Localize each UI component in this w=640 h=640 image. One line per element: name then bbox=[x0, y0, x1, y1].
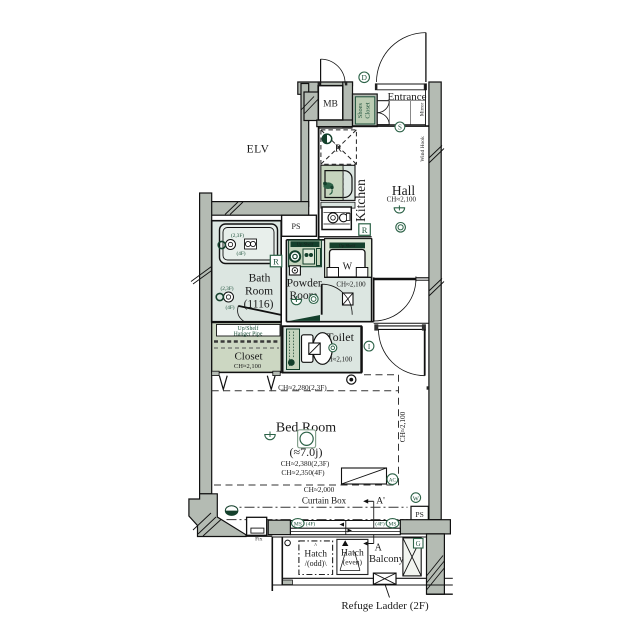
svg-text:Fix: Fix bbox=[255, 537, 263, 543]
svg-text:Balcony: Balcony bbox=[369, 554, 405, 565]
svg-text:^: ^ bbox=[314, 543, 317, 549]
svg-text:D: D bbox=[361, 73, 367, 82]
svg-text:Hanger Pipe: Hanger Pipe bbox=[234, 332, 263, 338]
svg-text:CH≈2,100: CH≈2,100 bbox=[387, 196, 417, 204]
svg-text:Entrance: Entrance bbox=[387, 91, 426, 103]
svg-text:W: W bbox=[343, 262, 353, 273]
svg-text:R: R bbox=[362, 225, 368, 235]
svg-text:(4F): (4F) bbox=[375, 520, 385, 527]
svg-text:Closet: Closet bbox=[234, 351, 262, 363]
svg-text:Refuge Ladder (2F): Refuge Ladder (2F) bbox=[341, 600, 429, 612]
svg-text:AC: AC bbox=[389, 479, 397, 484]
svg-text:CH≈2,380(2,3F): CH≈2,380(2,3F) bbox=[281, 459, 330, 468]
svg-text:(even): (even) bbox=[343, 558, 363, 567]
svg-text:Bath: Bath bbox=[249, 273, 271, 285]
svg-text:MS: MS bbox=[389, 521, 397, 527]
svg-text:CH≈2,100: CH≈2,100 bbox=[336, 280, 366, 288]
svg-text:CH≈2,100: CH≈2,100 bbox=[234, 363, 261, 370]
svg-text:G: G bbox=[416, 540, 421, 548]
svg-text:(4F): (4F) bbox=[306, 520, 316, 527]
svg-text:CH≈2,000: CH≈2,000 bbox=[304, 485, 335, 494]
svg-text:Hatch: Hatch bbox=[304, 550, 327, 560]
svg-text:Closet: Closet bbox=[365, 102, 372, 118]
svg-text:(4F): (4F) bbox=[225, 304, 234, 311]
svg-text:PS: PS bbox=[415, 510, 423, 519]
svg-text:(2,3F): (2,3F) bbox=[220, 285, 233, 292]
svg-text:Wind Hook: Wind Hook bbox=[420, 136, 426, 162]
svg-text:Curtain Box: Curtain Box bbox=[302, 496, 347, 506]
svg-text:Mirror: Mirror bbox=[420, 103, 425, 117]
svg-text:A: A bbox=[375, 543, 383, 554]
svg-text:Powder: Powder bbox=[287, 278, 322, 290]
svg-text:Up Shelf: Up Shelf bbox=[297, 242, 314, 247]
svg-text:Kitchen: Kitchen bbox=[353, 179, 368, 222]
svg-text:CH≈2,350(4F): CH≈2,350(4F) bbox=[281, 468, 325, 477]
svg-text:PS: PS bbox=[292, 222, 301, 231]
svg-text:Room: Room bbox=[245, 286, 273, 298]
svg-text:CH≈2,280(2,3F): CH≈2,280(2,3F) bbox=[278, 383, 327, 392]
svg-text:R: R bbox=[335, 144, 342, 155]
svg-text:Up Shelf: Up Shelf bbox=[339, 243, 356, 248]
svg-text:Shoes: Shoes bbox=[357, 103, 364, 119]
svg-text:R: R bbox=[273, 256, 279, 266]
svg-text:MS: MS bbox=[294, 521, 302, 527]
svg-text:S: S bbox=[398, 124, 402, 132]
svg-text:(4F): (4F) bbox=[236, 250, 245, 257]
svg-text:W: W bbox=[413, 495, 420, 502]
svg-text:(2,3F): (2,3F) bbox=[231, 232, 244, 239]
svg-text:A': A' bbox=[376, 497, 385, 507]
svg-text:MB: MB bbox=[323, 100, 338, 110]
svg-text:ELV: ELV bbox=[247, 144, 270, 156]
svg-text:/(odd)\: /(odd)\ bbox=[305, 559, 328, 568]
svg-text:CH≈2,100: CH≈2,100 bbox=[398, 411, 407, 442]
